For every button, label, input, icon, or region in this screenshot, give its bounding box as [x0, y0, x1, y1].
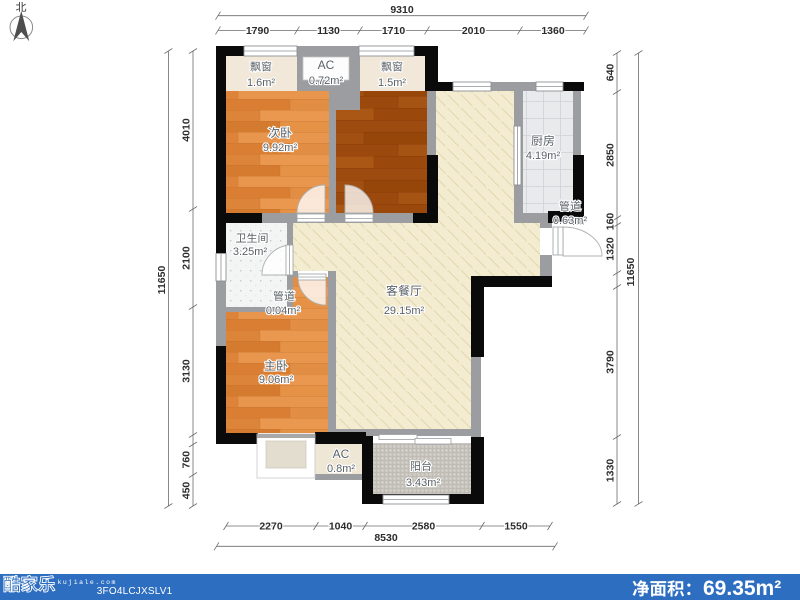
svg-text:1040: 1040: [329, 521, 353, 533]
svg-text:1130: 1130: [317, 25, 340, 37]
svg-text:69.35m²: 69.35m²: [703, 577, 781, 600]
svg-text:2850: 2850: [605, 143, 617, 167]
svg-text:kujiale.com: kujiale.com: [58, 579, 117, 586]
svg-text:1550: 1550: [504, 521, 528, 533]
svg-text:9.92m²: 9.92m²: [263, 142, 298, 154]
svg-text:0.04m²: 0.04m²: [266, 305, 301, 317]
svg-text:3FO4LCJXSLV1: 3FO4LCJXSLV1: [97, 586, 173, 597]
svg-text:9310: 9310: [390, 4, 414, 16]
svg-text:0.8m²: 0.8m²: [327, 463, 355, 475]
svg-text:450: 450: [181, 482, 193, 500]
svg-text:8530: 8530: [374, 532, 398, 544]
svg-text:4010: 4010: [181, 118, 193, 142]
svg-text:1790: 1790: [246, 25, 270, 37]
svg-text:1360: 1360: [541, 25, 565, 37]
svg-text:3790: 3790: [605, 350, 617, 374]
svg-text:11650: 11650: [156, 266, 168, 295]
svg-text:AC: AC: [333, 447, 350, 461]
svg-text:0.63m²: 0.63m²: [553, 215, 588, 227]
svg-text:640: 640: [605, 64, 617, 82]
svg-text:0.72m²: 0.72m²: [309, 75, 344, 87]
svg-text:160: 160: [605, 213, 617, 231]
svg-text:2010: 2010: [462, 25, 486, 37]
svg-text:AC: AC: [318, 58, 335, 72]
svg-text:760: 760: [181, 451, 193, 469]
svg-text:1320: 1320: [605, 237, 617, 261]
svg-text:3.43m²: 3.43m²: [406, 477, 441, 489]
svg-text:1710: 1710: [382, 25, 406, 37]
svg-text:2100: 2100: [181, 246, 193, 270]
svg-text:1.6m²: 1.6m²: [247, 77, 275, 89]
svg-text:9.06m²: 9.06m²: [259, 374, 294, 386]
svg-text:2270: 2270: [259, 521, 283, 533]
svg-text:3130: 3130: [181, 359, 193, 383]
svg-text:11650: 11650: [625, 258, 637, 287]
svg-text:1330: 1330: [605, 459, 617, 483]
svg-text:2580: 2580: [412, 521, 436, 533]
svg-text:3.25m²: 3.25m²: [233, 246, 268, 258]
svg-text:1.5m²: 1.5m²: [378, 77, 406, 89]
svg-text:29.15m²: 29.15m²: [384, 305, 425, 317]
svg-text:4.19m²: 4.19m²: [526, 150, 561, 162]
